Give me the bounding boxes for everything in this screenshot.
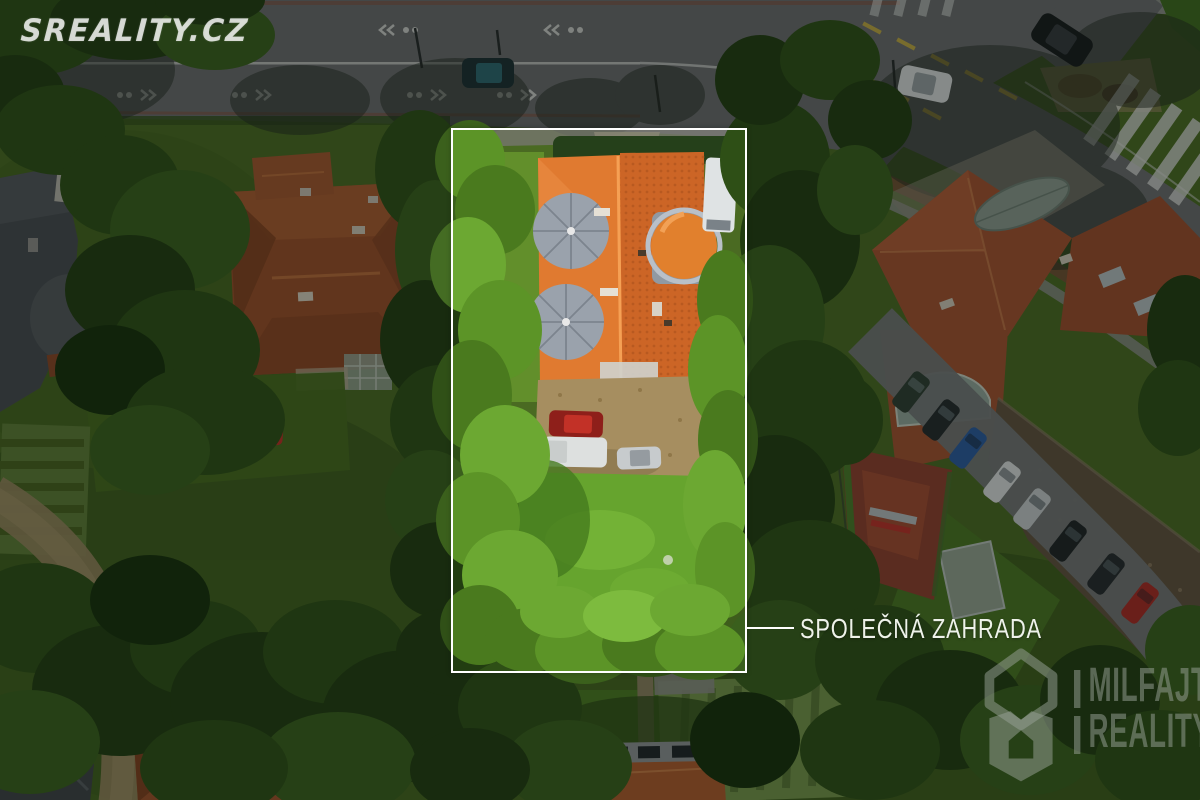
shared-garden-label: SPOLEČNÁ ZAHRADA bbox=[800, 612, 1042, 646]
agency-logo-name2: REALITY bbox=[1089, 710, 1200, 754]
agency-house-icon bbox=[974, 648, 1068, 784]
agency-logo-name: MILFAJT bbox=[1089, 664, 1200, 708]
sreality-watermark: SREALITY.CZ bbox=[20, 13, 251, 49]
agency-logo-bar bbox=[1074, 670, 1080, 708]
agency-logo-bar bbox=[1074, 716, 1080, 754]
property-boundary-box bbox=[451, 128, 747, 673]
listing-photo: SREALITY.CZ SPOLEČNÁ ZAHRADA MILFAJT REA… bbox=[0, 0, 1200, 800]
label-connector-line bbox=[747, 627, 794, 629]
agency-watermark: MILFAJT REALITY bbox=[974, 648, 1200, 784]
agency-logo-text: MILFAJT REALITY bbox=[1074, 662, 1200, 754]
